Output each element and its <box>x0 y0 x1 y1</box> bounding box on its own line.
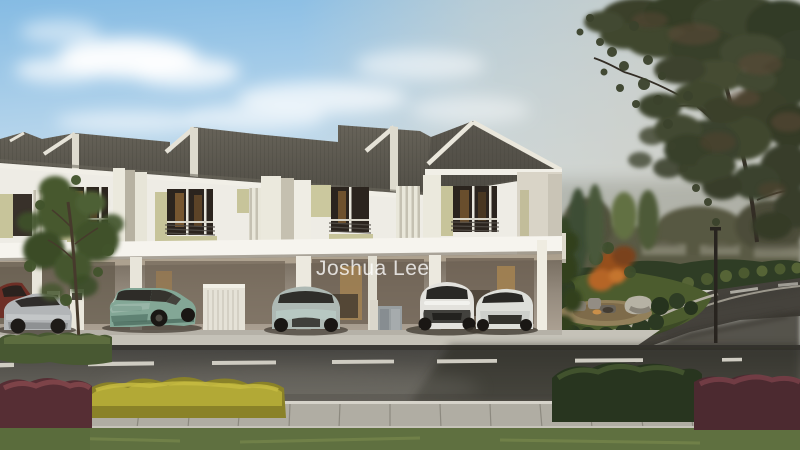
svg-text:Joshua Lee: Joshua Lee <box>316 257 430 280</box>
